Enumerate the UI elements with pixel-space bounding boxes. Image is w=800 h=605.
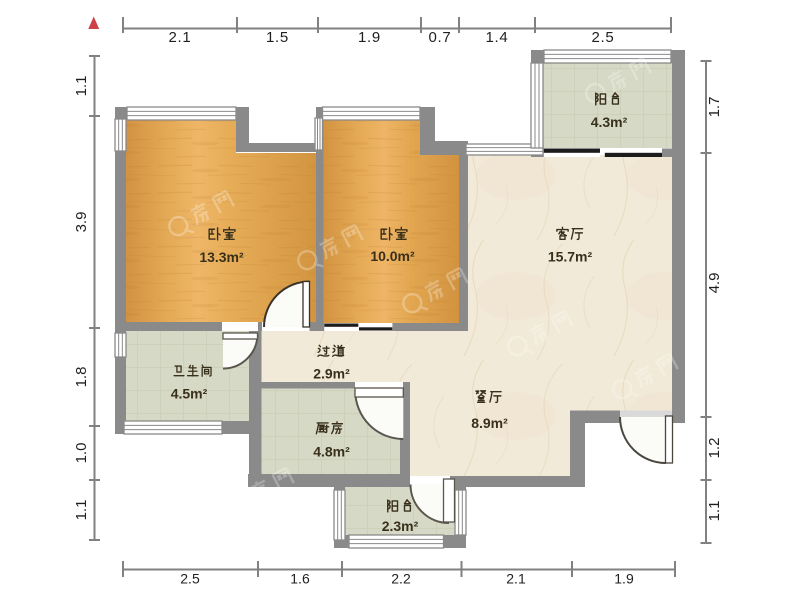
svg-text:1.6: 1.6 <box>290 571 310 587</box>
svg-text:1.8: 1.8 <box>73 367 90 388</box>
svg-text:1.1: 1.1 <box>73 500 90 521</box>
svg-text:2.3m²: 2.3m² <box>382 518 419 534</box>
svg-text:1.2: 1.2 <box>706 438 723 459</box>
svg-text:4.3m²: 4.3m² <box>591 114 628 130</box>
svg-text:1.1: 1.1 <box>706 501 723 522</box>
svg-text:4.8m²: 4.8m² <box>313 444 350 460</box>
svg-text:1.5: 1.5 <box>266 29 289 46</box>
svg-text:2.5: 2.5 <box>180 571 200 587</box>
svg-text:2.1: 2.1 <box>169 29 192 46</box>
svg-text:1.4: 1.4 <box>486 29 509 46</box>
svg-text:8.9m²: 8.9m² <box>471 415 508 431</box>
svg-text:1.0: 1.0 <box>73 443 90 464</box>
svg-text:0.7: 0.7 <box>429 29 452 46</box>
svg-text:13.3m²: 13.3m² <box>199 249 244 265</box>
svg-text:2.5: 2.5 <box>592 29 615 46</box>
svg-text:4.5m²: 4.5m² <box>171 386 208 402</box>
svg-text:4.9: 4.9 <box>706 273 723 294</box>
svg-text:1.9: 1.9 <box>614 571 634 587</box>
svg-text:1.1: 1.1 <box>73 76 90 97</box>
svg-text:10.0m²: 10.0m² <box>370 248 415 264</box>
svg-text:15.7m²: 15.7m² <box>548 249 593 265</box>
svg-text:1.7: 1.7 <box>706 97 723 118</box>
svg-text:2.9m²: 2.9m² <box>313 366 350 382</box>
svg-text:2.1: 2.1 <box>506 571 526 587</box>
svg-text:2.2: 2.2 <box>391 571 411 587</box>
svg-text:3.9: 3.9 <box>73 212 90 233</box>
svg-text:1.9: 1.9 <box>358 29 381 46</box>
